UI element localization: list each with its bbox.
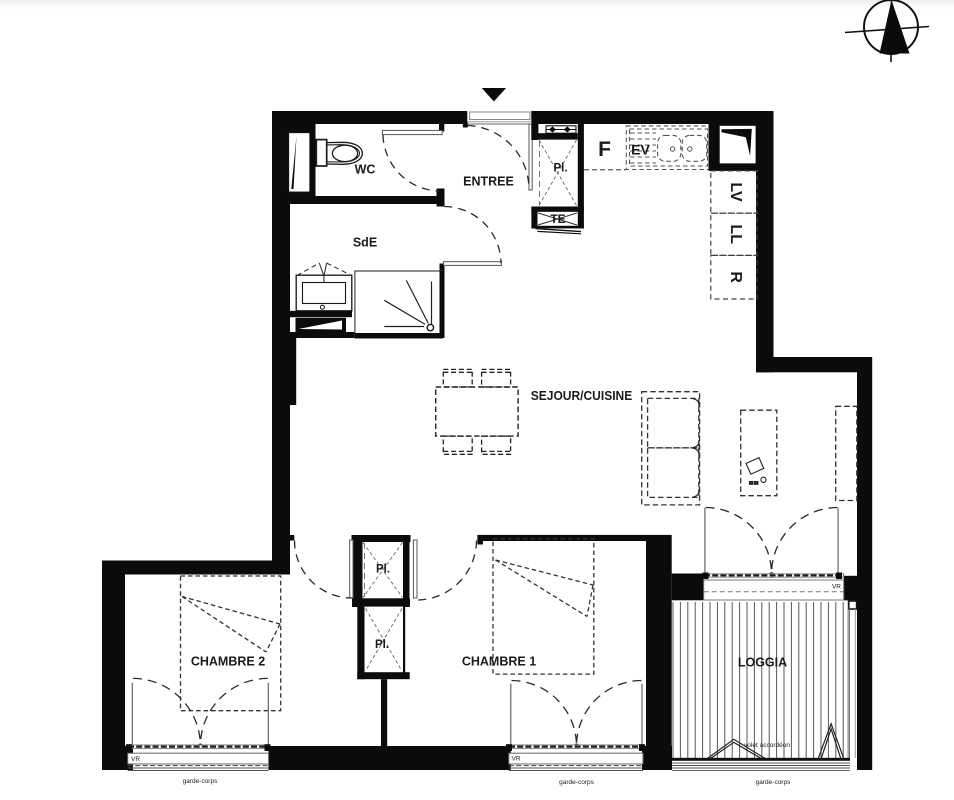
svg-text:SEJOUR/CUISINE: SEJOUR/CUISINE xyxy=(531,389,633,403)
svg-text:R: R xyxy=(727,271,744,283)
svg-text:WC: WC xyxy=(355,163,376,177)
svg-text:LV: LV xyxy=(727,182,744,202)
svg-text:Pl.: Pl. xyxy=(375,639,389,651)
svg-text:VR: VR xyxy=(832,584,841,591)
svg-text:garde-corps: garde-corps xyxy=(183,778,218,785)
svg-text:EV: EV xyxy=(631,142,650,158)
svg-text:SdE: SdE xyxy=(353,236,377,250)
svg-text:VR: VR xyxy=(512,756,521,763)
svg-text:ENTREE: ENTREE xyxy=(463,175,514,189)
svg-text:VR: VR xyxy=(131,756,140,763)
svg-text:Pl.: Pl. xyxy=(376,564,390,576)
svg-text:CHAMBRE 2: CHAMBRE 2 xyxy=(191,655,265,669)
svg-text:CHAMBRE 1: CHAMBRE 1 xyxy=(462,655,536,669)
svg-text:garde-corps: garde-corps xyxy=(756,779,791,786)
svg-text:garde-corps: garde-corps xyxy=(559,779,594,786)
svg-text:TE: TE xyxy=(550,212,565,226)
svg-text:LL: LL xyxy=(727,224,744,244)
svg-text:LOGGIA: LOGGIA xyxy=(738,656,787,670)
svg-text:volet accordéon: volet accordéon xyxy=(744,742,790,749)
svg-text:Pl.: Pl. xyxy=(553,163,567,175)
svg-text:F: F xyxy=(598,138,611,161)
